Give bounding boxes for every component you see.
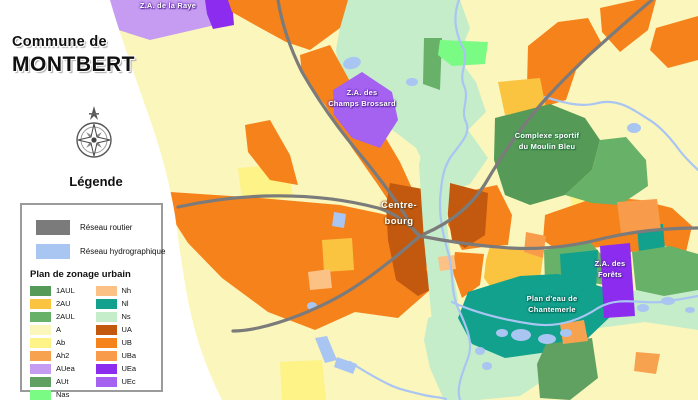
zone-2AUL-north-small xyxy=(423,38,442,90)
legend-zone-code: UA xyxy=(122,325,132,334)
legend-heading: Légende xyxy=(40,174,152,189)
legend-zone-item: Nl xyxy=(96,297,162,310)
pond-chantemerle xyxy=(482,362,492,370)
zoning-map-page: Z.A. de la Raye Z.A. des Champs Brossard… xyxy=(0,0,698,400)
legend-zone-item: Nas xyxy=(30,388,96,400)
legend-zone-code: UEa xyxy=(122,364,137,373)
legend-network-list: Réseau routierRéseau hydrographique xyxy=(30,215,161,263)
legend-network-label: Réseau hydrographique xyxy=(80,247,165,256)
zone-Nh-patch xyxy=(438,255,456,271)
pond xyxy=(637,304,649,312)
legend-zone-code: 2AUL xyxy=(56,312,75,321)
legend-color-swatch xyxy=(30,364,51,374)
legend-network-item: Réseau hydrographique xyxy=(30,239,161,263)
legend-zone-code: UB xyxy=(122,338,132,347)
legend-zone-item: 1AUL xyxy=(30,284,96,297)
legend-zoning-grid: 1AUL2AU2AULAAbAh2AUeaAUtNas NhNlNsUAUBUB… xyxy=(30,284,161,400)
zone-2AU-west xyxy=(322,238,354,272)
legend-zone-code: AUt xyxy=(56,377,69,386)
legend-zone-code: Nl xyxy=(122,299,129,308)
legend-zone-code: AUea xyxy=(56,364,75,373)
legend-zone-item: A xyxy=(30,323,96,336)
zone-Nh-patch xyxy=(308,269,332,290)
pond xyxy=(406,78,418,86)
legend-zone-item: 2AU xyxy=(30,297,96,310)
map-label-za-raye: Z.A. de la Raye xyxy=(118,0,218,11)
legend-zone-item: UEa xyxy=(96,362,162,375)
legend-color-swatch xyxy=(96,312,117,322)
map-label-text: Chantemerle xyxy=(502,304,602,315)
zone-UEa-forets xyxy=(600,243,635,318)
pond xyxy=(627,123,641,133)
legend-color-swatch xyxy=(30,325,51,335)
map-label-text: du Moulin Bleu xyxy=(492,141,602,152)
legend-zone-code: Nh xyxy=(122,286,132,295)
pond-chantemerle xyxy=(538,334,556,344)
legend-color-swatch xyxy=(30,312,51,322)
pond xyxy=(661,297,675,305)
legend-color-swatch xyxy=(96,299,117,309)
pond-chantemerle xyxy=(560,329,572,337)
map-label-centre-bourg: Centre- bourg xyxy=(369,198,429,230)
legend-color-swatch xyxy=(96,325,117,335)
legend-color-swatch xyxy=(96,351,117,361)
legend-zone-item: AUt xyxy=(30,375,96,388)
legend-zone-code: Ah2 xyxy=(56,351,69,360)
legend-color-swatch xyxy=(36,220,70,235)
legend-color-swatch xyxy=(30,338,51,348)
legend-zone-item: UA xyxy=(96,323,162,336)
map-label-text: Z.A. des xyxy=(582,258,638,269)
legend-box: Réseau routierRéseau hydrographique Plan… xyxy=(20,203,163,392)
legend-zone-item: UEc xyxy=(96,375,162,388)
legend-zoning-title: Plan de zonage urbain xyxy=(30,269,161,280)
map-label-plan-deau: Plan d'eau de Chantemerle xyxy=(502,293,602,315)
map-label-text: bourg xyxy=(369,214,429,230)
pond-chantemerle xyxy=(511,329,531,341)
legend-zone-item: AUea xyxy=(30,362,96,375)
zone-UBa-patch xyxy=(617,199,661,233)
map-title: Commune de MONTBERT xyxy=(12,34,162,77)
legend-color-swatch xyxy=(30,286,51,296)
legend-zone-code: A xyxy=(56,325,61,334)
legend-zone-code: Ns xyxy=(122,312,131,321)
legend-zone-item: Ns xyxy=(96,310,162,323)
pond-chantemerle xyxy=(475,347,485,355)
map-label-text: Centre- xyxy=(369,198,429,214)
map-label-text: Z.A. de la Raye xyxy=(140,1,196,10)
legend-network-item: Réseau routier xyxy=(30,215,161,239)
legend-color-swatch xyxy=(96,364,117,374)
map-label-text: Complexe sportif xyxy=(492,130,602,141)
legend-color-swatch xyxy=(30,351,51,361)
pond xyxy=(332,212,346,228)
legend-color-swatch xyxy=(96,377,117,387)
legend-zone-code: Nas xyxy=(56,390,69,399)
legend-zone-item: 2AUL xyxy=(30,310,96,323)
legend-zone-item: Nh xyxy=(96,284,162,297)
map-label-text: Champs Brossard xyxy=(312,98,412,109)
legend-zone-item: UB xyxy=(96,336,162,349)
map-label-text: Forêts xyxy=(582,269,638,280)
title-line1: Commune de xyxy=(12,34,162,50)
legend-color-swatch xyxy=(30,377,51,387)
legend-color-swatch xyxy=(30,390,51,400)
legend-zone-item: UBa xyxy=(96,349,162,362)
legend-zone-code: 1AUL xyxy=(56,286,75,295)
legend-color-swatch xyxy=(96,338,117,348)
legend-zone-code: UEc xyxy=(122,377,136,386)
pond-chantemerle xyxy=(496,329,508,337)
legend-network-label: Réseau routier xyxy=(80,223,132,232)
zone-Ab-patch xyxy=(280,360,326,400)
legend-color-swatch xyxy=(36,244,70,259)
legend-zoning-column-2: NhNlNsUAUBUBaUEaUEc xyxy=(96,284,162,400)
legend-zone-item: Ab xyxy=(30,336,96,349)
map-label-za-forets: Z.A. des Forêts xyxy=(582,258,638,280)
legend-zoning-column-1: 1AUL2AU2AULAAbAh2AUeaAUtNas xyxy=(30,284,96,400)
legend-color-swatch xyxy=(96,286,117,296)
title-line2: MONTBERT xyxy=(12,53,162,77)
compass-rose-icon xyxy=(66,100,122,170)
legend-zone-code: Ab xyxy=(56,338,65,347)
pond xyxy=(685,307,695,313)
legend-zone-code: 2AU xyxy=(56,299,71,308)
zone-2AUL-southeast xyxy=(632,246,698,296)
map-label-complexe-sportif: Complexe sportif du Moulin Bleu xyxy=(492,130,602,152)
legend-zone-item: Ah2 xyxy=(30,349,96,362)
legend-zone-code: UBa xyxy=(122,351,137,360)
zone-Ah2-patch xyxy=(634,352,660,374)
legend-color-swatch xyxy=(30,299,51,309)
map-label-za-champs-brossard: Z.A. des Champs Brossard xyxy=(312,87,412,109)
map-label-text: Z.A. des xyxy=(312,87,412,98)
map-label-text: Plan d'eau de xyxy=(502,293,602,304)
